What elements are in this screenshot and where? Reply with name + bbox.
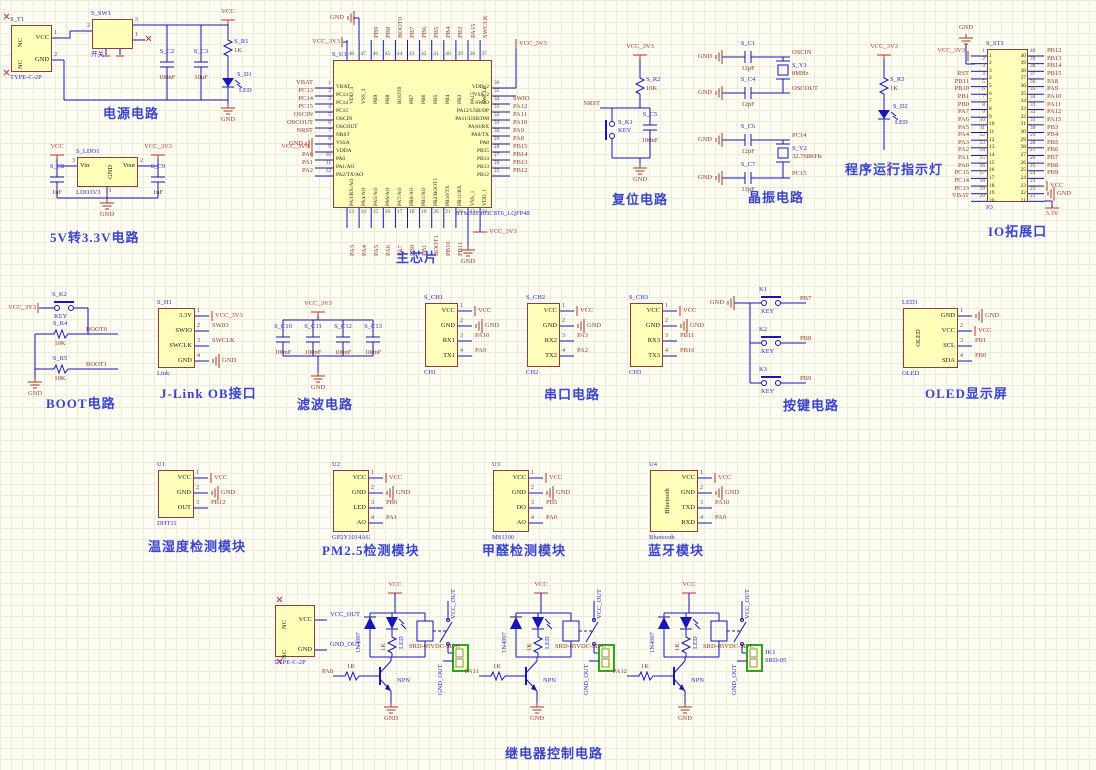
pin-number: 4 xyxy=(531,515,544,522)
part-K2[interactable] xyxy=(757,337,785,346)
part-xmark[interactable] xyxy=(4,14,9,19)
pin-number: 12 xyxy=(972,132,985,138)
component-value: 1K xyxy=(234,47,242,55)
part-S_R1[interactable] xyxy=(224,38,232,56)
net-label: BOOT0 xyxy=(397,4,405,38)
pin-name: 26 xyxy=(1013,160,1026,166)
pin-number: 16 xyxy=(972,163,985,169)
net-label: PA3 xyxy=(349,228,357,256)
part-vcc[interactable] xyxy=(151,155,165,159)
pin-number: 13 xyxy=(349,209,354,215)
power-net-label: VCC xyxy=(659,581,719,589)
net-label: PA12 xyxy=(589,668,627,676)
part-vcc[interactable] xyxy=(877,55,891,59)
pin-number: 48 xyxy=(349,51,354,57)
component-ref: JK1 xyxy=(765,649,775,657)
part-S_C7[interactable] xyxy=(739,172,757,184)
section-caption: 复位电路 xyxy=(612,196,668,204)
net-label: PA12 xyxy=(513,103,527,111)
component-ref: S_H1 xyxy=(157,299,172,307)
component-name: DHT11 xyxy=(157,520,177,528)
power-net-label: VCC_3V3 xyxy=(489,228,517,236)
pin-name: GND xyxy=(653,489,695,497)
part-S_C10[interactable] xyxy=(276,332,290,348)
pin-name: PB14 xyxy=(336,156,489,162)
gnd-net-label: GND xyxy=(690,322,704,330)
net-label: PA6 xyxy=(385,228,393,256)
pin-number: 8 xyxy=(318,136,331,142)
component-value: 1uF xyxy=(41,189,73,197)
part-S_K2[interactable] xyxy=(50,302,78,311)
net-label: PA9 xyxy=(475,347,486,355)
net-label: PA15 xyxy=(470,4,478,38)
gnd-net-label: GND xyxy=(670,715,700,723)
resistor-value: 1K xyxy=(337,663,365,671)
power-net-label: VCC_3V3 xyxy=(288,300,348,308)
pin-name: 4 xyxy=(989,75,992,81)
section-caption: 主芯片 xyxy=(396,254,438,262)
pin-number: 2 xyxy=(371,485,384,492)
part-S_Y1[interactable] xyxy=(776,61,790,79)
pin-number: 17 xyxy=(397,209,402,215)
pin-name: PB7 xyxy=(409,62,415,104)
power-net-label: VCC_3V3 xyxy=(128,143,188,151)
pin-name: PA8 xyxy=(336,140,489,146)
part-vcc[interactable] xyxy=(221,20,235,24)
pin-number: 46 xyxy=(373,51,378,57)
power-net-label: VCC_3V3 xyxy=(215,312,243,320)
section-caption: 蓝牙模块 xyxy=(648,547,704,555)
pin-number: 22 xyxy=(1030,186,1043,192)
pin-name: 8 xyxy=(989,106,992,112)
power-net-label: VCC xyxy=(389,474,402,482)
power-net-label: VCC xyxy=(365,581,425,589)
pin-number: 27 xyxy=(494,152,507,158)
net-label: PB9 xyxy=(1047,169,1058,177)
component-pins-typec-out xyxy=(315,620,327,650)
resistor-value: 1K xyxy=(483,663,511,671)
component-ref: S_Y1 xyxy=(792,62,807,70)
net-label: PB5 xyxy=(433,4,441,38)
part-S_C11[interactable] xyxy=(306,332,320,348)
component-value: KEY xyxy=(761,348,774,356)
pin-name: PA15 xyxy=(470,62,476,104)
pin-number: 1 xyxy=(109,188,112,195)
pin-name: AO xyxy=(336,519,366,527)
pin-name: OUT xyxy=(161,504,191,512)
pin-name: 19 xyxy=(989,190,994,196)
net-label: PC14 xyxy=(792,132,806,140)
pin-number: 3 xyxy=(531,500,544,507)
component-value: 100nF xyxy=(357,349,389,357)
part-gnd[interactable] xyxy=(100,199,114,209)
component-ref: S_C8 xyxy=(41,163,73,171)
gnd-net-label: GND xyxy=(303,384,333,392)
part-xmark[interactable] xyxy=(277,597,282,602)
component-value: 1uF xyxy=(142,189,174,197)
component-ref: S_C13 xyxy=(357,323,389,331)
net-label: BOOT1 xyxy=(86,361,107,369)
pin-number: 26 xyxy=(494,160,507,166)
part-S_R5[interactable] xyxy=(52,365,68,373)
pin-number: 7 xyxy=(318,128,331,134)
transistor-label: NPN xyxy=(543,677,556,685)
power-net-label: VCC xyxy=(27,143,87,151)
power-net-label: VCC xyxy=(478,307,491,315)
pin-number: 16 xyxy=(385,209,390,215)
pin-number: 1 xyxy=(197,308,210,315)
pin-name: Vout xyxy=(80,162,135,170)
pin-name: 34 xyxy=(1013,98,1026,104)
pin-number: 10 xyxy=(318,152,331,158)
net-label: PA10 xyxy=(715,499,729,507)
component-value: KEY xyxy=(761,308,774,316)
pin-name: DO xyxy=(496,504,526,512)
part-S_R3[interactable] xyxy=(880,76,888,94)
net-label: PB1 xyxy=(975,337,986,345)
pin-number: 42 xyxy=(421,51,426,57)
component-ref: S_T1 xyxy=(10,16,24,24)
pin-name: SWCLK xyxy=(482,62,488,104)
pin-name: GND xyxy=(633,322,660,330)
part-K3[interactable] xyxy=(757,377,785,386)
component-ref: S_K2 xyxy=(52,291,67,299)
pin-name: PA7/AO xyxy=(397,164,403,206)
component-name: MS1100 xyxy=(492,534,514,542)
diode-label: 1N4007 xyxy=(355,619,363,653)
power-net-label: VCC xyxy=(718,474,731,482)
pin-number: 1 xyxy=(54,30,67,37)
pin-name: 35 xyxy=(1013,91,1026,97)
pin-number: 2 xyxy=(972,56,985,62)
pin-number: 36 xyxy=(494,80,507,86)
component-ref: S_R2 xyxy=(646,76,660,84)
gnd-net-label: GND xyxy=(92,211,122,219)
pin-number: 7 xyxy=(972,94,985,100)
gnd-net-label: GND xyxy=(556,489,570,497)
net-label: PB11 xyxy=(680,332,694,340)
section-caption: 甲醛检测模块 xyxy=(482,547,566,555)
pin-name: 32 xyxy=(1013,114,1026,120)
part-S_C5[interactable] xyxy=(643,120,657,136)
relay-model: SRD-05VDC-SL-C xyxy=(703,643,754,651)
section-caption: 继电器控制电路 xyxy=(505,750,603,758)
pin-number: 2 xyxy=(700,485,713,492)
component-name: TYPE-C-2P xyxy=(10,74,42,82)
net-label: NRST xyxy=(251,127,313,135)
pin-number: 10 xyxy=(972,117,985,123)
component-value: KEY xyxy=(618,127,631,135)
gnd-net-label: GND xyxy=(453,258,483,266)
pin-number: 27 xyxy=(1030,147,1043,153)
pin-name: 9 xyxy=(989,114,992,120)
relay-driver-unit[interactable] xyxy=(479,593,614,713)
net-label: PA9 xyxy=(513,127,524,135)
pin-name: 31 xyxy=(1013,121,1026,127)
component-name: CH1 xyxy=(424,369,436,377)
component-ref: S_C12 xyxy=(327,323,359,331)
power-net-label: VCC_3V3 xyxy=(854,43,914,51)
schematic-canvas[interactable]: S_T1TYPE-C-2PNCNC1VCC2GNDS_SW1开关231S_LDO… xyxy=(0,0,1096,770)
net-label: PB14 xyxy=(513,151,527,159)
pin-number: 1 xyxy=(562,303,575,310)
net-label: PC15 xyxy=(792,170,806,178)
part-S_R4[interactable] xyxy=(52,330,68,338)
part-gnd_r[interactable] xyxy=(716,86,722,100)
part-S_C13[interactable] xyxy=(366,332,380,348)
pin-name: 17 xyxy=(989,175,994,181)
part-S_K1[interactable] xyxy=(606,118,615,142)
pin-number: 3 xyxy=(318,96,331,102)
pin-number: 28 xyxy=(494,144,507,150)
net-label: PB12 xyxy=(513,167,527,175)
component-ref: S_C4 xyxy=(732,76,764,84)
component-value: 32.768KHz xyxy=(792,153,822,161)
pin-number: 3 xyxy=(972,63,985,69)
net-label: PB7 xyxy=(409,4,417,38)
part-gnd[interactable] xyxy=(221,104,235,114)
pin-name: 23 xyxy=(1013,183,1026,189)
part-S_C6[interactable] xyxy=(739,134,757,146)
net-label: PA8 xyxy=(513,135,524,143)
component-ref: U2 xyxy=(332,461,340,469)
part-gnd[interactable] xyxy=(633,164,647,174)
pin-name: VCC xyxy=(496,474,526,482)
pin-name: 39 xyxy=(1013,60,1026,66)
part-S_C4[interactable] xyxy=(739,87,757,99)
component-name: CH3 xyxy=(629,369,641,377)
pin-number: 30 xyxy=(1030,125,1043,131)
pin-number: 2 xyxy=(197,323,210,330)
component-ref: S_C6 xyxy=(732,123,764,131)
net-label: PA2 xyxy=(577,347,588,355)
pin-name: SWCLK xyxy=(161,342,192,350)
net-label: NRST xyxy=(570,100,600,108)
pin-name: RX2 xyxy=(530,337,557,345)
component-ref: U1 xyxy=(157,461,165,469)
pin-number: 33 xyxy=(1030,102,1043,108)
pin-number: 37 xyxy=(1030,71,1043,77)
pin-name: 3.3V xyxy=(161,312,192,320)
gnd-net-label: GND xyxy=(1057,190,1071,198)
part-S_C8[interactable] xyxy=(50,172,64,188)
net-label: PB6 xyxy=(386,499,397,507)
pin-number: 2 xyxy=(460,318,473,325)
component-ref: S_R3 xyxy=(890,76,904,84)
pin-name: 7 xyxy=(989,98,992,104)
pin-number: 3 xyxy=(960,338,973,345)
pin-name: GND xyxy=(496,489,526,497)
component-name: TYPE-C-2P xyxy=(274,659,306,667)
pin-number: 11 xyxy=(318,160,331,166)
net-label: GND_OUT xyxy=(437,659,445,695)
net-label: SWCLK xyxy=(212,337,235,345)
component-name: LDO3V3 xyxy=(76,189,101,197)
component-value: 8MHz xyxy=(792,70,809,78)
pin-number: 41 xyxy=(433,51,438,57)
net-label: VCC_OUT xyxy=(450,583,458,619)
pin-name: 5 xyxy=(989,83,992,89)
part-K1[interactable] xyxy=(757,297,785,306)
power-net-label: VCC xyxy=(549,474,562,482)
part-gnd_r[interactable] xyxy=(716,133,722,147)
part-gnd_r[interactable] xyxy=(728,296,734,310)
net-label: PA9 xyxy=(715,514,726,522)
part-vcc[interactable] xyxy=(311,312,325,316)
pin-name: VCC xyxy=(906,327,955,335)
pin-name: GND xyxy=(14,56,49,64)
net-label: PB9 xyxy=(373,4,381,38)
pin-name: PB0/AO xyxy=(409,164,415,206)
pin-number: 4 xyxy=(318,104,331,110)
component-ref: S_D2 xyxy=(893,103,908,111)
pin-name: PB6 xyxy=(421,62,427,104)
gnd-net-label: GND xyxy=(625,176,655,184)
pin-name: VCC xyxy=(653,474,695,482)
net-label: PC14 xyxy=(251,95,313,103)
component-ref: S_D1 xyxy=(237,71,252,79)
power-net-label: VCC xyxy=(978,327,991,335)
section-caption: OLED显示屏 xyxy=(925,390,1008,398)
net-label: VBAT xyxy=(251,79,313,87)
pin-number: 23 xyxy=(1030,178,1043,184)
pin-number: 36 xyxy=(1030,79,1043,85)
component-ref: K1 xyxy=(759,286,767,294)
pin-name: PA11/USB/DM xyxy=(336,116,489,122)
pin-number: 24 xyxy=(1030,170,1043,176)
pin-number: 2 xyxy=(77,23,90,30)
part-gnd[interactable] xyxy=(959,34,973,44)
power-net-label: VCC_3V3 xyxy=(280,38,340,46)
diode-label: 1N4007 xyxy=(649,619,657,653)
pin-name: GND xyxy=(906,312,955,320)
pin-number: 2 xyxy=(54,52,67,59)
pin-number: 38 xyxy=(1030,63,1043,69)
net-label: PB13 xyxy=(513,159,527,167)
pin-name: PB3 xyxy=(457,62,463,104)
pin-number: 14 xyxy=(972,147,985,153)
pin-number: 3 xyxy=(700,500,713,507)
net-label: PB3 xyxy=(457,4,465,38)
pin-number: 8 xyxy=(972,102,985,108)
pin-name: 29 xyxy=(1013,137,1026,143)
component-value: 10K xyxy=(46,340,74,348)
component-value: 10K xyxy=(646,85,657,93)
part-S_C2[interactable] xyxy=(160,57,174,73)
component-ref: U3 xyxy=(492,461,500,469)
pin-number: 6 xyxy=(972,86,985,92)
part-S_R2[interactable] xyxy=(636,76,644,94)
pin-name: PB15 xyxy=(336,148,489,154)
net-label: PA1 xyxy=(251,159,313,167)
part-gnd_r[interactable] xyxy=(716,50,722,64)
component-value: 10K xyxy=(46,375,74,383)
part-gnd[interactable] xyxy=(311,372,325,382)
net-label: OSCOUT xyxy=(792,85,818,93)
pin-number: 32 xyxy=(494,112,507,118)
component-ref: S_Y2 xyxy=(792,145,807,153)
pin-name: RX3 xyxy=(633,337,660,345)
gnd-net-label: GND xyxy=(222,357,236,365)
pin-number: 1 xyxy=(665,303,678,310)
pin-number: 1 xyxy=(700,470,713,477)
part-gnd_r[interactable] xyxy=(716,171,722,185)
component-value: 100nF xyxy=(297,349,329,357)
pin-name: VCC xyxy=(161,474,191,482)
net-label: PA11 xyxy=(441,668,479,676)
component-ref: S_C2 xyxy=(151,48,183,56)
pin-name: 14 xyxy=(989,152,994,158)
part-S_C12[interactable] xyxy=(336,332,350,348)
net-label: PA11 xyxy=(513,111,527,119)
component-power-switch[interactable] xyxy=(92,19,133,49)
pin-number: 23 xyxy=(470,209,475,215)
power-net-label: VCC_3V3 xyxy=(610,43,670,51)
gnd-net-label: GND xyxy=(985,312,999,320)
part-S_Y2[interactable] xyxy=(776,144,790,162)
gnd-net-label: GND xyxy=(672,136,712,144)
pin-name: 40 xyxy=(1013,53,1026,59)
pin-name: PB1/AO xyxy=(421,164,427,206)
resistor-value: 1K xyxy=(380,635,388,651)
pin-name: SWIO xyxy=(161,327,192,335)
pin-number: 3 xyxy=(197,338,210,345)
gnd-net-label: GND xyxy=(213,116,243,124)
component-ref: K3 xyxy=(759,366,767,374)
part-S_C9[interactable] xyxy=(151,172,165,188)
pin-number: 24 xyxy=(482,209,487,215)
component-ref: S_CH3 xyxy=(629,294,648,302)
net-label: PB5 xyxy=(546,499,557,507)
part-xmark[interactable] xyxy=(4,70,9,75)
pin-number: 3 xyxy=(665,333,678,340)
power-net-label: VCC xyxy=(198,8,258,16)
pin-name: 30 xyxy=(1013,129,1026,135)
component-value: 100nF xyxy=(151,74,183,82)
component-ref: S_C7 xyxy=(732,161,764,169)
component-ref: S_C9 xyxy=(142,163,174,171)
section-caption: 按键电路 xyxy=(783,402,839,410)
pin-number: 3 xyxy=(196,500,209,507)
power-net-label: VCC_3V3 xyxy=(247,143,309,151)
part-gnd[interactable] xyxy=(28,378,42,388)
net-label: PB10 xyxy=(445,228,453,256)
part-vcc[interactable] xyxy=(633,55,647,59)
part-S_C1[interactable] xyxy=(739,51,757,63)
pin-name: 33 xyxy=(1013,106,1026,112)
relay-driver-unit[interactable] xyxy=(627,593,762,713)
pin-number: 1 xyxy=(318,80,331,86)
component-ref: S_U1 xyxy=(332,51,347,59)
component-ref: S_CH1 xyxy=(424,294,443,302)
transistor-label: NPN xyxy=(691,677,704,685)
pin-number: 35 xyxy=(494,88,507,94)
section-caption: IO拓展口 xyxy=(988,228,1047,236)
diode-label: 1N4007 xyxy=(501,619,509,653)
pin-number: 2 xyxy=(665,318,678,325)
gnd-net-label: GND xyxy=(396,489,410,497)
gnd-net-label: GND xyxy=(587,322,601,330)
pin-name: 2 xyxy=(989,60,992,66)
power-net-label: VCC xyxy=(683,307,696,315)
power-net-label: VCC xyxy=(580,307,593,315)
gnd-net-label: GND xyxy=(672,174,712,182)
component-value: LED xyxy=(239,87,252,95)
pin-number: 31 xyxy=(494,120,507,126)
part-S_C3[interactable] xyxy=(194,57,208,73)
net-label: GND_OUT xyxy=(583,659,591,695)
pin-name: 24 xyxy=(1013,175,1026,181)
